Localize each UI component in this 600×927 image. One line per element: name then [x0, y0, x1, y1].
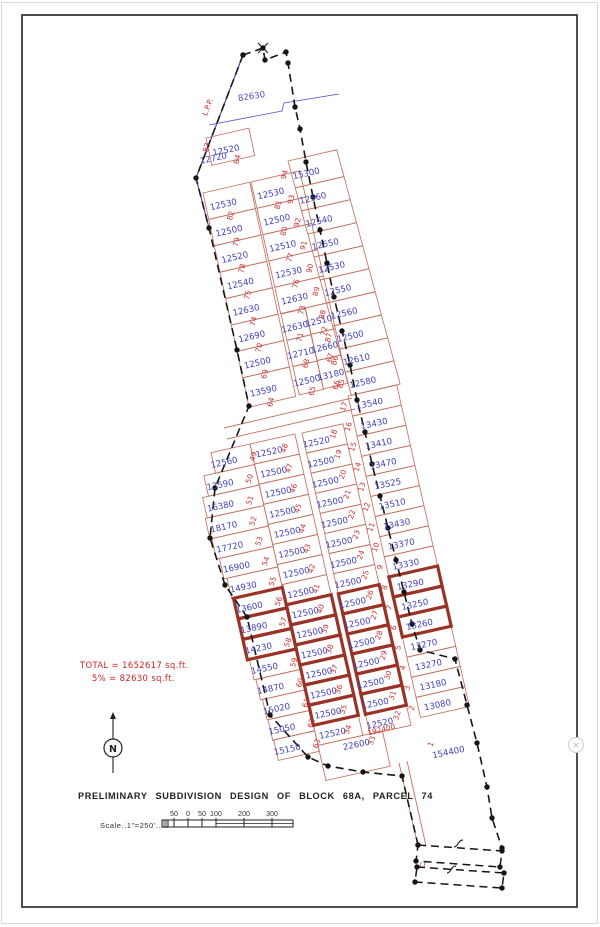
boundary-marker	[222, 582, 227, 587]
sheet: 1252084125308212500791252078125407512630…	[0, 0, 600, 927]
scale-bar-tick-label: 300	[266, 809, 278, 818]
panel-toggle[interactable]: ×	[569, 738, 584, 753]
boundary-marker	[193, 175, 198, 180]
scale-bar-tick-label: 100	[210, 809, 222, 818]
scale-label: Scale..1"=250'.....	[100, 821, 169, 830]
north-letter: N	[109, 744, 117, 755]
boundary-marker	[415, 842, 420, 847]
boundary-marker	[413, 858, 418, 863]
boundary-marker	[414, 864, 419, 869]
boundary-marker	[325, 763, 330, 768]
scale-bar-tick-label: 0	[186, 809, 190, 818]
panel-toggle-icon[interactable]: ×	[572, 741, 580, 751]
boundary-marker	[234, 347, 239, 352]
boundary-marker	[497, 864, 502, 869]
boundary-marker	[377, 493, 382, 498]
boundary-marker	[412, 879, 417, 884]
boundary-marker	[317, 227, 322, 232]
boundary-marker	[246, 403, 251, 408]
boundary-marker	[303, 159, 308, 164]
boundary-marker	[207, 535, 212, 540]
boundary-marker	[464, 702, 469, 707]
drawing-border	[22, 15, 577, 907]
boundary-marker	[262, 57, 267, 62]
boundary-marker	[305, 754, 310, 759]
boundary-marker	[244, 614, 249, 619]
boundary-marker	[452, 656, 457, 661]
boundary-marker	[499, 848, 504, 853]
boundary-marker	[501, 870, 506, 875]
boundary-marker	[360, 769, 365, 774]
boundary-marker	[283, 49, 288, 54]
boundary-marker	[484, 784, 489, 789]
sheet-title: PRELIMINARY SUBDIVISION DESIGN OF BLOCK …	[78, 791, 433, 801]
boundary-marker	[292, 104, 297, 109]
boundary-marker	[399, 773, 404, 778]
scale-bar-tick-label: 50	[170, 809, 178, 818]
plat-svg: 1252084125308212500791252078125407512630…	[0, 0, 600, 927]
scale-bar-tick-label: 50	[198, 809, 206, 818]
five-percent-label: 5% = 82630 sq.ft.	[92, 673, 175, 683]
scale-bar-tick-label: 200	[238, 809, 250, 818]
total-area-label: TOTAL = 1652617 sq.ft.	[79, 660, 189, 670]
boundary-marker	[474, 740, 479, 745]
boundary-marker	[206, 225, 211, 230]
boundary-marker	[240, 52, 245, 57]
boundary-marker	[297, 126, 302, 131]
boundary-marker	[285, 60, 290, 65]
boundary-marker	[499, 885, 504, 890]
boundary-marker	[489, 815, 494, 820]
